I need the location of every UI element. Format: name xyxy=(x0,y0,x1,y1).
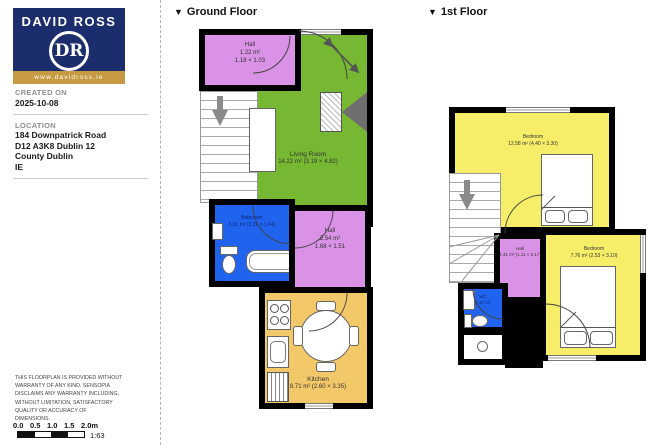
scale-tick: 0.0 xyxy=(13,421,23,430)
chair xyxy=(349,326,359,346)
location-address: 184 Downpatrick Road D12 A3K8 Dublin 12 … xyxy=(15,130,106,172)
divider xyxy=(13,178,148,179)
scale-tick: 2.0m xyxy=(81,421,98,430)
kitchen-sink-basin xyxy=(270,341,286,363)
address-line: 184 Downpatrick Road xyxy=(15,130,106,141)
scale-ticks: 0.0 0.5 1.0 1.5 2.0m xyxy=(0,421,160,431)
fireplace-icon xyxy=(342,92,367,132)
label-bathroom: Bathroom 3.91 m² (2.39 × 1.64) xyxy=(215,215,289,228)
ground-floor-title: ▼Ground Floor xyxy=(174,6,257,18)
label-hall-middle: Hall 2.54 m² 1.68 × 1.51 xyxy=(295,228,365,251)
pillow xyxy=(545,210,565,223)
label-kitchen: Kitchen 8.71 m² (2.60 × 3.35) xyxy=(270,376,366,392)
bed-blanket-line xyxy=(560,327,616,328)
toilet-tank xyxy=(464,314,472,328)
pillow xyxy=(590,331,613,345)
window xyxy=(301,29,341,35)
chair xyxy=(316,301,336,311)
scale-tick: 0.5 xyxy=(30,421,40,430)
boiler-icon xyxy=(477,341,488,352)
chimney-hatch xyxy=(320,92,342,132)
label-hall-first: Hall 2.41 m² (1.11 × 2.17) xyxy=(495,246,545,258)
toilet-bowl xyxy=(472,315,488,327)
address-line: County Dublin xyxy=(15,151,106,162)
label-bedroom-main: Bedroom 12.58 m² (4.40 × 3.30) xyxy=(470,134,596,147)
window xyxy=(506,107,570,113)
brand-monogram-icon: DR xyxy=(49,31,89,71)
pillow xyxy=(568,210,588,223)
address-line: IE xyxy=(15,162,106,173)
dining-table xyxy=(300,310,352,362)
disclaimer-text: THIS FLOORPLAN IS PROVIDED WITHOUT WARRA… xyxy=(15,374,123,423)
scale-tick: 1.5 xyxy=(64,421,74,430)
label-hall-entry: Hall 1.22 m² 1.18 × 1.03 xyxy=(205,42,295,65)
section-separator xyxy=(160,0,161,445)
window xyxy=(305,403,333,409)
toilet-bowl xyxy=(222,255,236,274)
pillow xyxy=(564,331,587,345)
brand-logo: DAVID ROSS DR www.davidross.ie xyxy=(13,8,125,84)
divider xyxy=(13,114,148,115)
label-living-room: Living Room 14.22 m² (3.19 × 4.82) xyxy=(252,151,364,167)
window xyxy=(548,355,596,361)
address-line: D12 A3K8 Dublin 12 xyxy=(15,141,106,152)
triangle-down-icon: ▼ xyxy=(174,7,183,17)
floorplan-page: DAVID ROSS DR www.davidross.ie CREATED O… xyxy=(0,0,668,445)
label-bedroom-2: Bedroom 7.76 m² (2.53 × 3.10) xyxy=(551,246,637,259)
label-wc: WC 1.17 m² xyxy=(463,294,503,306)
stove xyxy=(267,300,291,330)
location-label: LOCATION xyxy=(15,121,56,130)
brand-url: www.davidross.ie xyxy=(13,71,125,84)
chair xyxy=(316,362,336,372)
created-on-label: CREATED ON xyxy=(15,88,67,97)
chair xyxy=(293,326,303,346)
window xyxy=(640,235,646,273)
room-bathroom xyxy=(209,199,295,287)
scale-tick: 1.0 xyxy=(47,421,57,430)
toilet-tank xyxy=(220,246,238,255)
bed-blanket-line xyxy=(541,207,593,208)
brand-name: DAVID ROSS xyxy=(13,14,125,29)
triangle-down-icon: ▼ xyxy=(428,7,437,17)
scale-ratio: 1:63 xyxy=(90,431,105,440)
created-on-value: 2025-10-08 xyxy=(15,98,58,108)
brand-monogram: DR xyxy=(55,41,84,61)
kitchen-sink xyxy=(267,336,289,368)
first-floor-title: ▼1st Floor xyxy=(428,6,487,18)
scale-bar xyxy=(17,431,85,438)
